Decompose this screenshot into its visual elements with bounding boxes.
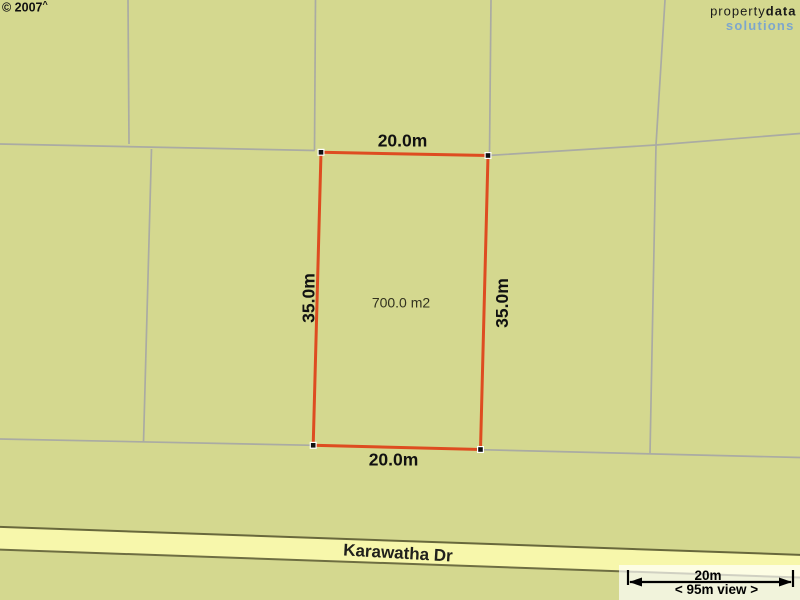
svg-text:< 95m view >: < 95m view > [675, 582, 758, 597]
svg-text:35.0m: 35.0m [299, 273, 319, 323]
svg-text:20.0m: 20.0m [378, 131, 428, 151]
svg-text:20m: 20m [694, 568, 721, 583]
svg-text:© 2007^: © 2007^ [2, 0, 49, 15]
svg-text:20.0m: 20.0m [369, 450, 419, 470]
svg-text:propertydata: propertydata [710, 4, 796, 19]
svg-text:35.0m: 35.0m [492, 278, 512, 328]
svg-text:700.0 m2: 700.0 m2 [372, 295, 431, 311]
svg-text:solutions: solutions [726, 18, 795, 33]
